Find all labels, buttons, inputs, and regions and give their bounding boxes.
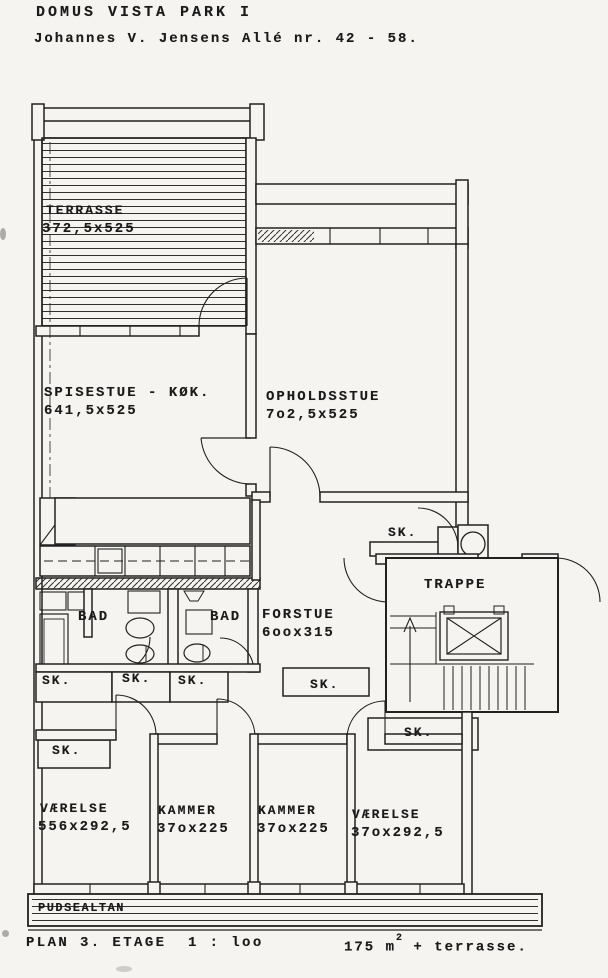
plan-scale-caption: PLAN 3. ETAGE 1 : loo bbox=[26, 936, 264, 951]
area-exponent: 2 bbox=[396, 933, 403, 944]
room-label-bad-left: BAD bbox=[78, 610, 109, 625]
area-value: 175 m bbox=[344, 940, 396, 956]
closet-label-sk-top: SK. bbox=[388, 526, 417, 540]
room-dims-terrasse: 372,5x525 bbox=[42, 222, 136, 237]
room-dims-spisestue: 641,5x525 bbox=[44, 404, 138, 419]
room-label-kammer-1: KAMMER bbox=[158, 804, 217, 818]
balcony-label-pudsealtan: PUDSEALTAN bbox=[38, 902, 125, 915]
room-dims-kammer-1: 37ox225 bbox=[157, 822, 230, 837]
area-caption: 175 m2 + terrasse. bbox=[344, 938, 528, 956]
room-label-kammer-2: KAMMER bbox=[258, 804, 317, 818]
scan-smudge bbox=[116, 966, 132, 972]
room-label-terrasse: TERRASSE bbox=[46, 204, 124, 218]
room-label-bad-right: BAD bbox=[210, 610, 241, 625]
room-dims-forstue: 6oox315 bbox=[262, 626, 335, 641]
room-label-spisestue: SPISESTUE - KØK. bbox=[44, 386, 210, 401]
closet-label-sk-d: SK. bbox=[310, 678, 339, 692]
closet-label-sk-a: SK. bbox=[42, 674, 71, 688]
room-label-forstue: FORSTUE bbox=[262, 608, 335, 623]
page-address: Johannes V. Jensens Allé nr. 42 - 58. bbox=[34, 32, 419, 47]
kitchen-fixtures bbox=[36, 498, 260, 589]
closet-label-sk-left: SK. bbox=[52, 744, 81, 758]
closet-label-sk-b: SK. bbox=[122, 672, 151, 686]
page-title: DOMUS VISTA PARK I bbox=[36, 5, 252, 22]
room-label-vaerelse-right: VÆRELSE bbox=[352, 808, 421, 822]
room-dims-kammer-2: 37ox225 bbox=[257, 822, 330, 837]
room-dims-vaerelse-right: 37ox292,5 bbox=[351, 826, 445, 841]
closet-label-sk-right: SK. bbox=[404, 726, 433, 740]
room-label-opholdsstue: OPHOLDSSTUE bbox=[266, 390, 380, 405]
room-dims-vaerelse-left: 556x292,5 bbox=[38, 820, 132, 835]
bathrooms bbox=[40, 589, 258, 676]
room-dims-opholdsstue: 7o2,5x525 bbox=[266, 408, 360, 423]
staircase bbox=[344, 508, 600, 712]
room-label-vaerelse-left: VÆRELSE bbox=[40, 802, 109, 816]
stairs-label-trappe: TRAPPE bbox=[424, 578, 486, 593]
scan-smudge bbox=[0, 228, 6, 240]
area-suffix: + terrasse. bbox=[403, 940, 528, 956]
scan-smudge bbox=[2, 930, 9, 937]
closet-label-sk-c: SK. bbox=[178, 674, 207, 688]
scanned-floor-plan-page: DOMUS VISTA PARK I Johannes V. Jensens A… bbox=[0, 0, 608, 978]
upper-balcony-bands bbox=[256, 180, 468, 248]
